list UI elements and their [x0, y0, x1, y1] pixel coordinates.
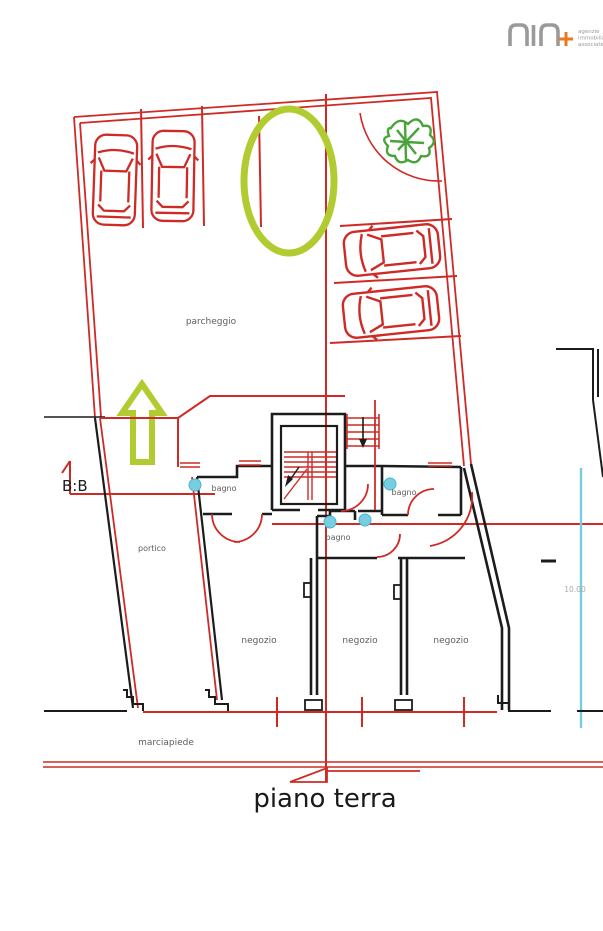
building-walls — [123, 414, 517, 711]
section-label: B:B — [62, 477, 88, 495]
street-baseline — [44, 697, 603, 727]
section-line-bb — [62, 461, 603, 524]
bagno-right-label: bagno — [391, 488, 416, 497]
level-marker — [290, 768, 420, 782]
negozio-left-label: negozio — [241, 636, 277, 646]
neighbor-building-walls — [541, 349, 603, 561]
floor-plan-drawing: parcheggio portico bagno bagno bagno neg… — [0, 0, 603, 931]
agency-logo: agenzie immobiliari associate — [510, 25, 603, 48]
plan-title: piano terra — [253, 784, 396, 814]
floor-plan-page: parcheggio portico bagno bagno bagno neg… — [0, 0, 603, 931]
tree-icon — [384, 119, 434, 162]
portico-walls — [95, 418, 222, 708]
interior-stair-treads — [284, 452, 336, 500]
negozio-right-label: negozio — [433, 636, 469, 646]
dimension-label: 10.00 — [564, 585, 586, 594]
logo-tagline: agenzie immobiliari associate — [578, 29, 603, 48]
bagno-left-label: bagno — [211, 484, 236, 493]
sidewalk-edge-lines — [43, 762, 603, 767]
door-swing-arcs — [212, 484, 472, 557]
car-right-2 — [341, 281, 440, 343]
car-top-left-2 — [147, 131, 199, 222]
logo-plus-icon — [559, 32, 573, 46]
car-top-left-1 — [88, 134, 141, 226]
logo-tagline-line3: associate — [578, 42, 603, 48]
logo-tagline-line2: immobiliari — [578, 36, 603, 42]
car-right-1 — [342, 219, 441, 281]
portico-label: portico — [138, 544, 166, 553]
logo-glyphs — [510, 25, 558, 46]
parking-label: parcheggio — [186, 317, 237, 327]
highlight-ellipse — [244, 109, 334, 253]
negozio-center-label: negozio — [342, 636, 378, 646]
logo-tagline-line1: agenzie — [578, 29, 600, 35]
direction-arrow-icon — [122, 384, 162, 462]
bagno-center-label: bagno — [325, 533, 350, 542]
sidewalk-label: marciapiede — [138, 738, 194, 748]
